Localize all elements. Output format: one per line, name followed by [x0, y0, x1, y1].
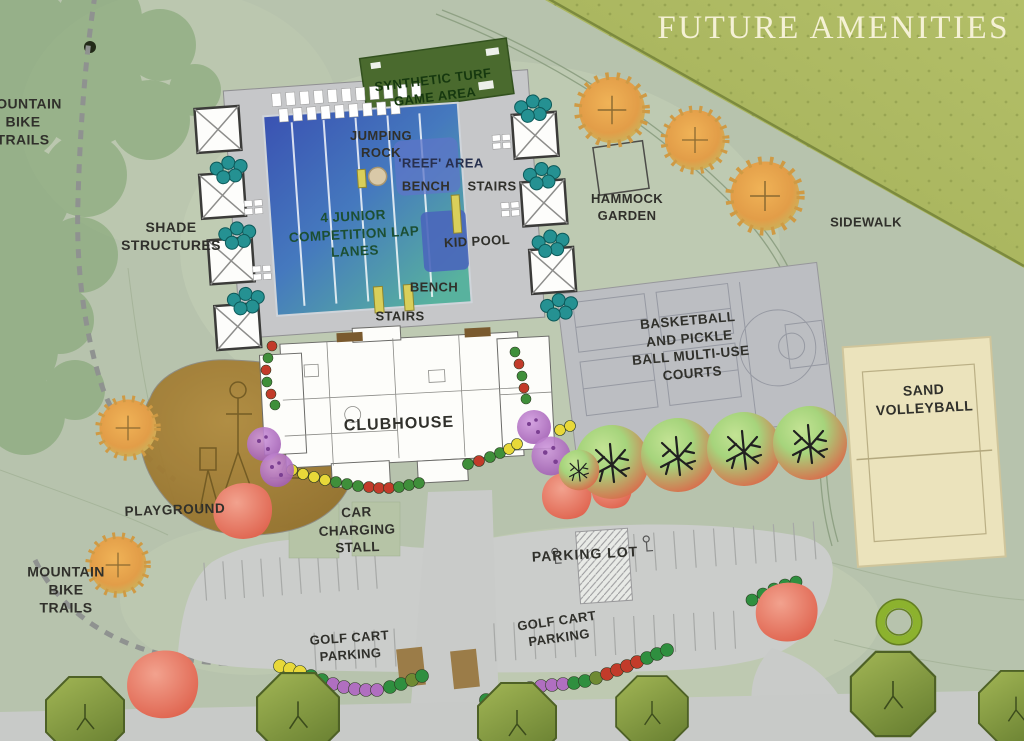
label-line: SIDEWALK	[830, 215, 902, 232]
label-golf-cart-parking-left: GOLF CART PARKING	[309, 627, 391, 666]
label-line: BENCH	[410, 280, 458, 297]
label-shade-structures: SHADE STRUCTURES	[121, 218, 221, 254]
label-car-charging-stall: CAR CHARGING STALL	[318, 502, 396, 557]
label-line: 'REEF' AREA	[398, 156, 483, 173]
label-line: GARDEN	[591, 208, 663, 225]
label-line: STAIRS	[467, 179, 516, 196]
label-courts: BASKETBALL AND PICKLE BALL MULTI-USE COU…	[628, 307, 751, 387]
label-lap-lanes: 4 JUNIOR COMPETITION LAP LANES	[287, 204, 420, 263]
label-line: KID POOL	[444, 232, 511, 252]
label-line: MOUNTAIN	[27, 563, 105, 581]
sand-volleyball-area	[843, 337, 1006, 567]
octagon-tree-icon	[616, 676, 688, 741]
red-green-tree-icon	[641, 418, 715, 492]
label-line: CHARGING	[318, 520, 395, 540]
purple-tree-icon	[260, 453, 294, 487]
label-sand-volleyball: SAND VOLLEYBALL	[874, 378, 973, 419]
site-plan: FUTURE AMENITIES MOUNTAIN BIKE TRAILS SH…	[0, 0, 1024, 741]
label-playground: PLAYGROUND	[124, 499, 225, 520]
label-line: BENCH	[402, 179, 450, 196]
label-line: BIKE	[27, 581, 105, 599]
label-line: MOUNTAIN	[0, 95, 62, 113]
label-line: CLUBHOUSE	[343, 413, 454, 438]
cabana-icon	[194, 106, 241, 153]
label-line: PLAYGROUND	[124, 499, 225, 520]
label-line: BIKE	[0, 113, 62, 131]
red-green-tree-icon	[773, 406, 847, 480]
label-line: HAMMOCK	[591, 191, 663, 208]
octagon-tree-icon	[851, 652, 935, 736]
label-reef-area: 'REEF' AREA	[398, 156, 483, 173]
site-plan-canvas	[0, 0, 1024, 741]
label-clubhouse: CLUBHOUSE	[343, 413, 454, 438]
red-green-tree-icon	[707, 412, 781, 486]
label-hammock-garden: HAMMOCK GARDEN	[591, 191, 663, 225]
label-line: TRAILS	[0, 131, 62, 149]
red-green-tree-icon	[559, 450, 600, 491]
red-tree-icon	[127, 651, 198, 719]
label-line: STALL	[319, 537, 396, 557]
label-line: STRUCTURES	[121, 236, 221, 254]
jumping-rock-icon	[368, 167, 387, 186]
label-line: TRAILS	[27, 599, 105, 617]
label-mountain-bike-trails-top: MOUNTAIN BIKE TRAILS	[0, 95, 62, 150]
label-stairs-lower: STAIRS	[375, 309, 424, 326]
label-bench-upper: BENCH	[402, 179, 450, 196]
label-sidewalk: SIDEWALK	[830, 215, 902, 232]
page-title: FUTURE AMENITIES	[657, 10, 1010, 47]
label-line: STAIRS	[375, 309, 424, 326]
red-tree-icon	[756, 583, 818, 642]
label-kid-pool: KID POOL	[444, 232, 511, 252]
label-bench-lower: BENCH	[410, 280, 458, 297]
label-line: JUMPING	[350, 128, 412, 145]
label-line: SHADE	[121, 218, 221, 236]
label-mountain-bike-trails-bottom: MOUNTAIN BIKE TRAILS	[27, 563, 105, 618]
label-stairs-upper: STAIRS	[467, 179, 516, 196]
